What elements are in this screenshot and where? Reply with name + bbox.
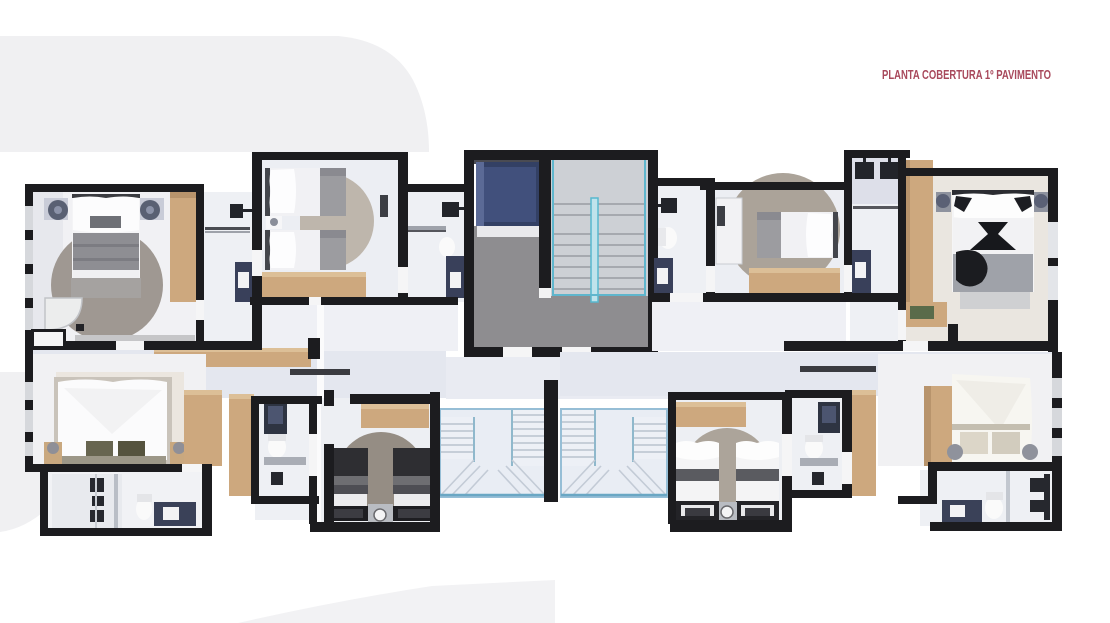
svg-text:PLANTA COBERTURA 1º PAVIMENTO: PLANTA COBERTURA 1º PAVIMENTO — [882, 68, 1051, 82]
